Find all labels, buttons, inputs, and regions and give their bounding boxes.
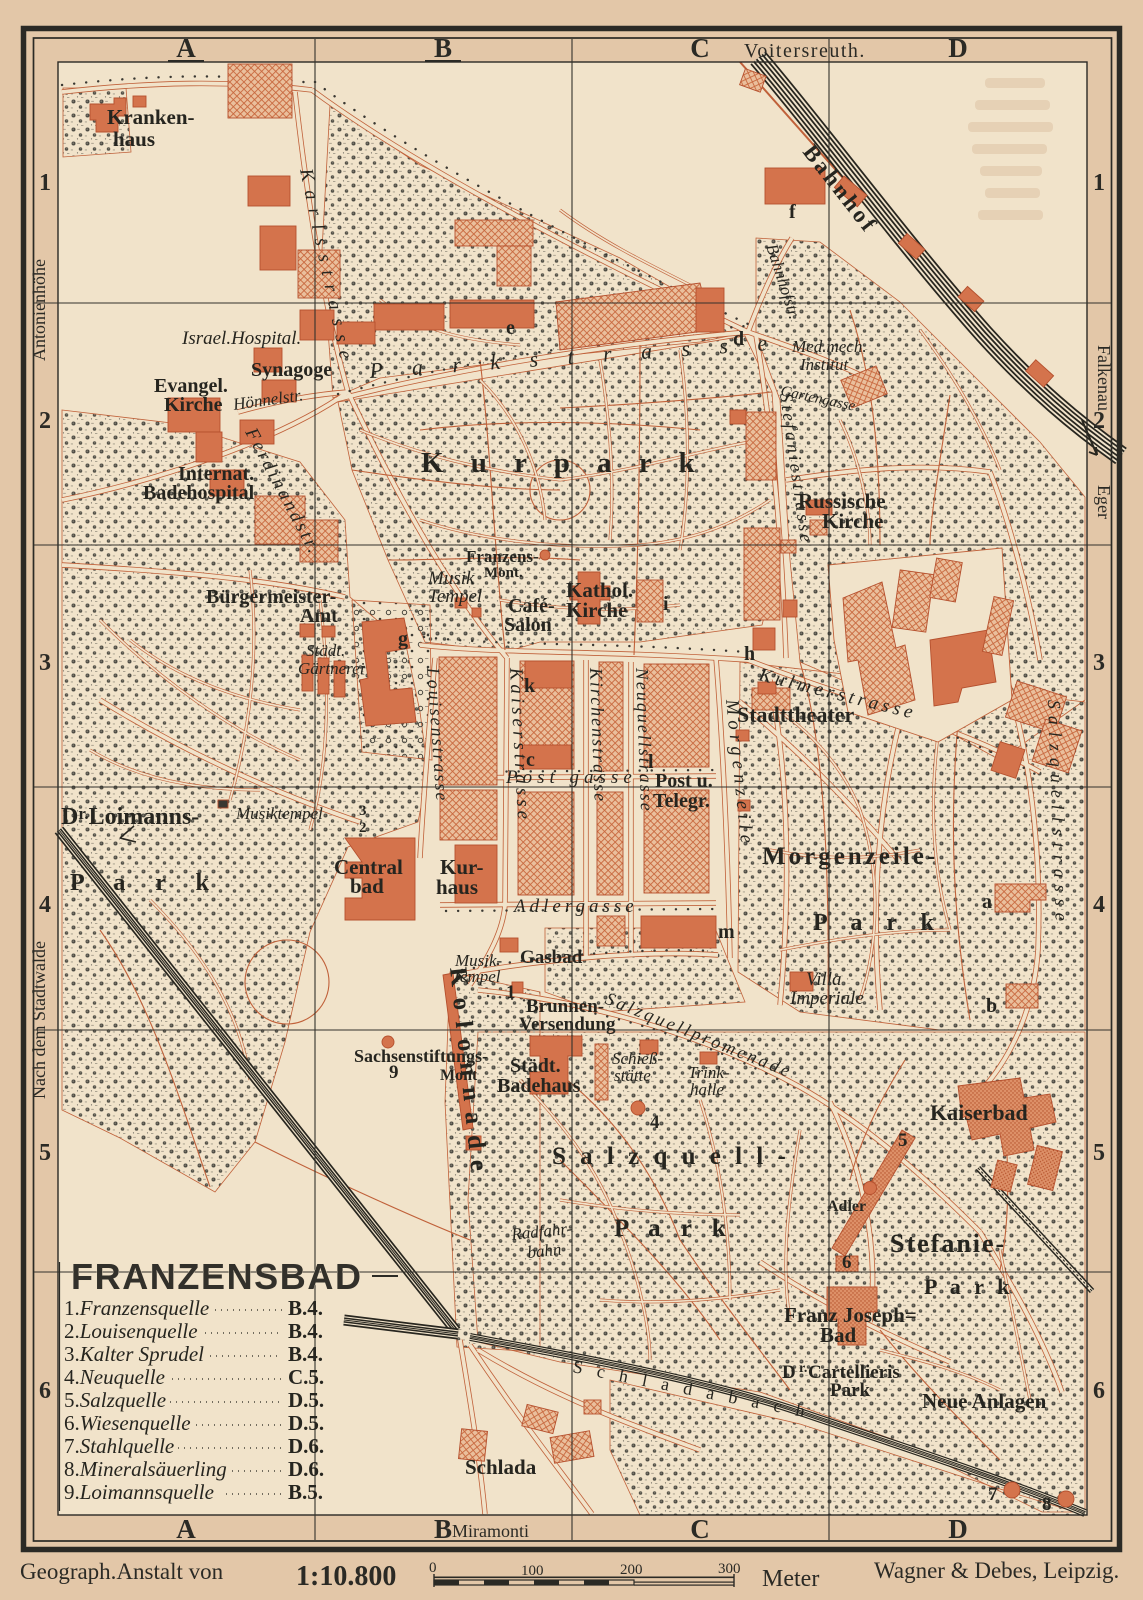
- svg-text:7.Stahlquelle: 7.Stahlquelle: [64, 1434, 174, 1458]
- svg-text:Geograph.Anstalt von: Geograph.Anstalt von: [20, 1559, 224, 1584]
- svg-text:6: 6: [842, 1252, 852, 1273]
- svg-text:C.5.: C.5.: [288, 1365, 324, 1389]
- svg-text:D.6.: D.6.: [288, 1457, 324, 1481]
- svg-text:Israel.Hospital.: Israel.Hospital.: [181, 328, 301, 349]
- svg-text:Neue Anlagen: Neue Anlagen: [922, 1389, 1047, 1413]
- svg-text:Falkenau: Falkenau: [1094, 345, 1114, 411]
- svg-text:Miramonti: Miramonti: [452, 1521, 529, 1541]
- svg-text:P a r k: P a r k: [924, 1274, 1013, 1299]
- svg-text:Versendung: Versendung: [519, 1014, 616, 1035]
- svg-text:Adler: Adler: [827, 1198, 866, 1215]
- svg-text:4.Neuquelle: 4.Neuquelle: [64, 1365, 165, 1389]
- svg-text:6: 6: [1093, 1378, 1105, 1404]
- svg-text:Badehospital: Badehospital: [143, 482, 255, 504]
- svg-text:bahn: bahn: [526, 1240, 562, 1262]
- svg-text:B: B: [434, 1514, 452, 1544]
- svg-text:Tempel: Tempel: [428, 586, 482, 607]
- svg-text:Kirche: Kirche: [164, 394, 223, 416]
- svg-text:C: C: [690, 1514, 710, 1544]
- svg-text:2: 2: [359, 820, 367, 836]
- svg-text:2: 2: [39, 408, 51, 434]
- svg-text:4: 4: [650, 1112, 660, 1133]
- svg-text:Morgenzeile-: Morgenzeile-: [762, 843, 938, 870]
- svg-text:1: 1: [506, 982, 516, 1003]
- svg-text:Schlada: Schlada: [465, 1455, 537, 1479]
- svg-text:Kirche: Kirche: [822, 509, 883, 533]
- svg-text:D.6.: D.6.: [288, 1434, 324, 1458]
- svg-text:Park: Park: [830, 1380, 871, 1401]
- svg-text:FRANZENSBAD: FRANZENSBAD: [71, 1256, 363, 1297]
- svg-text:a: a: [982, 891, 992, 913]
- svg-text:Telegr.: Telegr.: [653, 790, 710, 812]
- svg-text:2: 2: [1093, 408, 1105, 434]
- svg-text:Kaiserbad: Kaiserbad: [930, 1100, 1028, 1125]
- svg-text:6.Wiesenquelle: 6.Wiesenquelle: [64, 1411, 191, 1435]
- svg-text:f: f: [789, 201, 796, 223]
- svg-text:0: 0: [429, 1560, 437, 1576]
- svg-text:9: 9: [389, 1062, 399, 1083]
- svg-text:1: 1: [1093, 170, 1105, 196]
- svg-text:Villa: Villa: [806, 969, 842, 990]
- svg-text:P a r k: P a r k: [70, 870, 221, 896]
- svg-text:Stefanie-: Stefanie-: [890, 1229, 1006, 1258]
- svg-text:Kranken-: Kranken-: [107, 105, 195, 129]
- svg-text:B.5.: B.5.: [288, 1480, 323, 1504]
- svg-text:haus: haus: [113, 127, 155, 151]
- svg-text:3.Kalter Sprudel: 3.Kalter Sprudel: [64, 1342, 204, 1366]
- svg-text:P a r k: P a r k: [614, 1215, 733, 1242]
- svg-text:B: B: [434, 33, 452, 63]
- svg-text:3: 3: [39, 650, 51, 676]
- svg-text:8: 8: [1042, 1494, 1052, 1515]
- svg-text:r.: r.: [799, 1361, 807, 1376]
- svg-text:Imperiale: Imperiale: [789, 988, 864, 1009]
- svg-text:3: 3: [1093, 650, 1105, 676]
- svg-text:9.Loimannsquelle: 9.Loimannsquelle: [64, 1480, 214, 1504]
- svg-text:6: 6: [39, 1378, 51, 1404]
- svg-text:5: 5: [39, 1140, 51, 1166]
- svg-text:D: D: [782, 1362, 796, 1383]
- svg-text:4: 4: [39, 892, 51, 918]
- svg-text:Städt.: Städt.: [510, 1055, 561, 1077]
- svg-text:D: D: [948, 1514, 968, 1544]
- svg-text:haus: haus: [436, 875, 478, 899]
- svg-text:Antonienhöhe: Antonienhöhe: [29, 259, 49, 361]
- svg-text:2.Louisenquelle: 2.Louisenquelle: [64, 1319, 198, 1343]
- svg-text:Voitersreuth.: Voitersreuth.: [744, 40, 866, 62]
- svg-text:Synagoge: Synagoge: [251, 359, 332, 381]
- svg-text:Gärtnerei: Gärtnerei: [298, 659, 365, 678]
- svg-text:Städt.: Städt.: [306, 641, 345, 660]
- svg-text:5: 5: [1093, 1140, 1105, 1166]
- svg-text:S a l z q u e l l -: S a l z q u e l l -: [552, 1143, 790, 1170]
- svg-text:Amt: Amt: [300, 605, 338, 627]
- svg-text:B.4.: B.4.: [288, 1319, 323, 1343]
- svg-text:3: 3: [359, 803, 367, 819]
- svg-text:b: b: [986, 995, 997, 1017]
- svg-text:Badehaus: Badehaus: [497, 1075, 581, 1097]
- svg-text:1:10.800: 1:10.800: [296, 1561, 396, 1592]
- svg-text:Institut: Institut: [799, 355, 849, 374]
- svg-text:Kirche: Kirche: [566, 598, 627, 622]
- svg-text:Post u.: Post u.: [655, 770, 713, 792]
- svg-text:1.Franzensquelle: 1.Franzensquelle: [64, 1296, 209, 1320]
- svg-text:Salon: Salon: [504, 614, 552, 636]
- svg-text:D.5.: D.5.: [288, 1411, 324, 1435]
- svg-text:200: 200: [620, 1562, 643, 1578]
- svg-text:Adlergasse: Adlergasse: [512, 896, 638, 917]
- svg-text:Gasbad: Gasbad: [520, 947, 583, 968]
- svg-text:stätte: stätte: [614, 1066, 651, 1085]
- svg-text:B.4.: B.4.: [288, 1342, 323, 1366]
- svg-text:g: g: [398, 628, 408, 650]
- svg-text:4: 4: [1093, 892, 1105, 918]
- svg-text:Post gasse: Post gasse: [505, 767, 637, 788]
- svg-text:Wagner & Debes, Leipzig.: Wagner & Debes, Leipzig.: [874, 1558, 1119, 1583]
- svg-text:e: e: [506, 317, 515, 339]
- svg-text:B.4.: B.4.: [288, 1296, 323, 1320]
- svg-text:K u r p a r k: K u r p a r k: [421, 447, 705, 479]
- svg-text:8.Mineralsäuerling: 8.Mineralsäuerling: [64, 1457, 227, 1481]
- svg-text:Meter: Meter: [762, 1566, 819, 1592]
- svg-text:Mont.: Mont.: [484, 565, 523, 581]
- svg-text:5: 5: [898, 1130, 908, 1151]
- svg-text:Stadttheater: Stadttheater: [737, 702, 855, 727]
- svg-text:Musiktempel: Musiktempel: [235, 804, 323, 823]
- svg-text:m: m: [718, 921, 735, 943]
- svg-text:bad: bad: [350, 874, 384, 898]
- svg-text:Bad: Bad: [820, 1323, 857, 1347]
- svg-text:5.Salzquelle: 5.Salzquelle: [64, 1388, 166, 1412]
- svg-text:D.5.: D.5.: [288, 1388, 324, 1412]
- svg-text:300: 300: [718, 1561, 741, 1577]
- svg-text:Franzens-: Franzens-: [466, 547, 539, 566]
- svg-text:A: A: [176, 33, 196, 63]
- svg-text:i: i: [663, 593, 669, 615]
- svg-text:A: A: [176, 1514, 196, 1544]
- svg-text:P a r k: P a r k: [813, 910, 943, 936]
- svg-text:Eger: Eger: [1094, 485, 1114, 519]
- svg-text:Nach dem Stadtwalde: Nach dem Stadtwalde: [29, 941, 49, 1099]
- svg-text:halle: halle: [690, 1080, 724, 1099]
- svg-text:h: h: [744, 643, 755, 665]
- svg-text:D: D: [948, 33, 968, 63]
- svg-text:7: 7: [988, 1484, 998, 1505]
- svg-text:1: 1: [39, 170, 51, 196]
- svg-text:C: C: [690, 33, 710, 63]
